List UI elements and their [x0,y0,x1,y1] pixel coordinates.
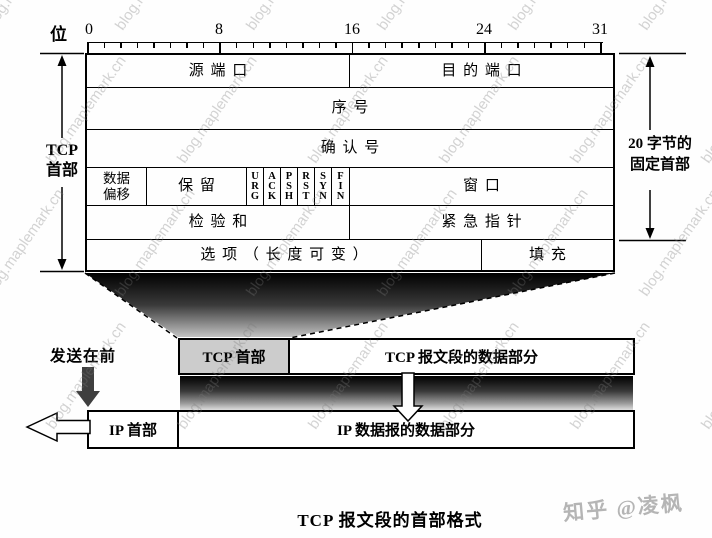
ruler-tick [451,43,453,48]
sent-first-arrow [76,367,100,407]
ruler-tick [186,43,188,48]
field-seq-no: 序号 [87,88,613,130]
transmission-direction-arrow [27,413,90,441]
ruler-tick [418,43,420,48]
ruler-tick [567,43,569,48]
ruler-tick [319,43,321,48]
field-reserved: 保留 [147,168,247,206]
ruler-tick [468,43,470,48]
tiled-watermark: blog.maplemark.cn [698,319,712,433]
tcp-header-table: 源端口 目的端口 序号 确认号 数据 偏移 保留 U R G A C K P S… [85,53,615,272]
flag-psh: P S H [281,168,298,206]
right-bracket-arrowhead-down [646,228,655,239]
ruler-tick [385,43,387,48]
ruler-label-0: 0 [85,21,93,39]
ruler-tick [550,43,552,48]
flag-ack: A C K [264,168,281,206]
ruler-tick [302,43,304,48]
ruler-tick [435,43,437,48]
ruler-tick [269,43,271,48]
ruler-label-16: 16 [344,21,360,39]
field-urgent-pointer: 紧急指针 [350,206,613,240]
ruler-tick [286,43,288,48]
ruler-tick [120,43,122,48]
field-source-port: 源端口 [87,55,350,88]
funnel-dashed-right [290,273,615,338]
tiled-watermark: blog.maplemark.cn [0,186,68,300]
ruler-label-8: 8 [215,21,223,39]
ruler-tick [170,43,172,48]
ruler-tick [104,43,106,48]
ruler-label-31: 31 [592,21,608,39]
ruler-tick [236,43,238,48]
tcp-segment-box: TCP 首部 TCP 报文段的数据部分 [178,338,635,375]
tcp-segment-data-cell: TCP 报文段的数据部分 [290,340,633,373]
ruler-tick [253,43,255,48]
tcp-segment-header-cell: TCP 首部 [180,340,290,373]
ruler-tick [153,43,155,48]
ruler-tick [368,43,370,48]
flag-urg: U R G [247,168,264,206]
tcp-to-ip-gradient-band [180,376,633,410]
tiled-watermark: blog.maplemark.cn [636,186,712,300]
bit-unit-label: 位 [50,20,67,45]
ruler-tick [401,43,403,48]
ruler-tick [137,43,139,48]
flag-rst: R S T [298,168,315,206]
ip-data-cell: IP 数据报的数据部分 [179,412,633,447]
ruler-tick [335,43,337,48]
left-bracket-arrowhead-down [58,259,67,270]
tcp-header-diagram: 位 0 8 16 24 31 源端口 目的端口 序号 确认号 数据 偏移 保留 … [0,0,712,538]
flag-fin: F I N [332,168,350,206]
ip-datagram-box: IP 首部 IP 数据报的数据部分 [87,410,635,449]
ruler-label-24: 24 [476,21,492,39]
ruler-tick [501,43,503,48]
ruler-tick [584,43,586,48]
field-checksum: 检验和 [87,206,350,240]
bit-ruler: 位 0 8 16 24 31 [0,0,712,60]
ruler-tick [517,43,519,48]
figure-caption: TCP 报文段的首部格式 [230,506,550,531]
credit-watermark: 知乎 @凌枫 [562,487,685,527]
field-ack-no: 确认号 [87,130,613,168]
ip-header-cell: IP 首部 [89,412,179,447]
flag-syn: S Y N [315,168,332,206]
ruler-tick [203,43,205,48]
funnel-dashed-left [85,273,177,338]
field-dest-port: 目的端口 [350,55,613,88]
field-options: 选项（长度可变） [87,240,482,270]
field-data-offset: 数据 偏移 [87,168,147,206]
tcp-header-bracket-label: TCP 首部 [28,141,96,181]
field-padding: 填充 [482,240,613,270]
header-zoom-funnel [85,273,615,337]
field-window: 窗口 [350,168,613,206]
fixed-header-bracket-label: 20 字节的 固定首部 [611,134,709,176]
sent-first-label: 发送在前 [50,344,134,366]
ruler-tick [534,43,536,48]
